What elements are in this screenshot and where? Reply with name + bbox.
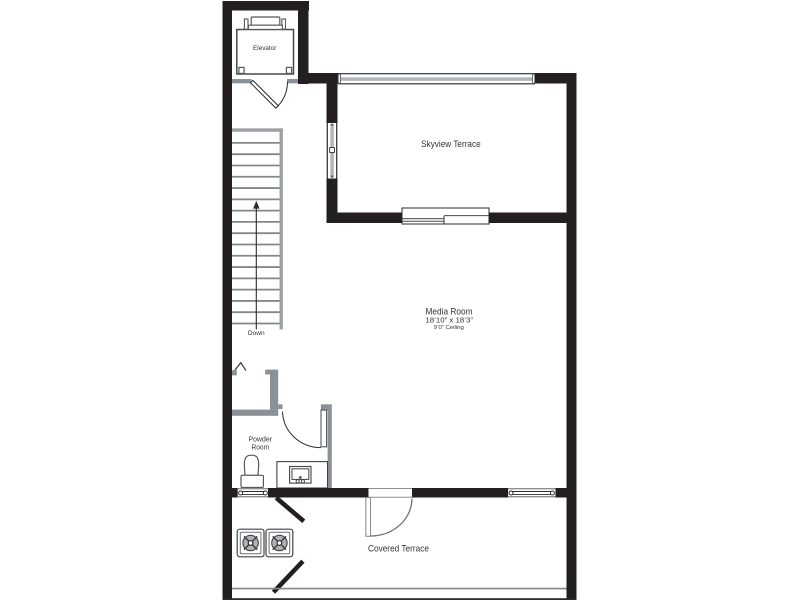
svg-text:Down: Down [248, 330, 265, 337]
svg-text:Covered Terrace: Covered Terrace [368, 544, 429, 554]
svg-text:9’0” Ceiling: 9’0” Ceiling [434, 325, 464, 331]
svg-text:Room: Room [252, 442, 270, 451]
svg-text:Elevator: Elevator [253, 45, 277, 52]
svg-text:18’10” x 18’3”: 18’10” x 18’3” [425, 316, 473, 325]
svg-text:Skyview Terrace: Skyview Terrace [421, 139, 481, 149]
